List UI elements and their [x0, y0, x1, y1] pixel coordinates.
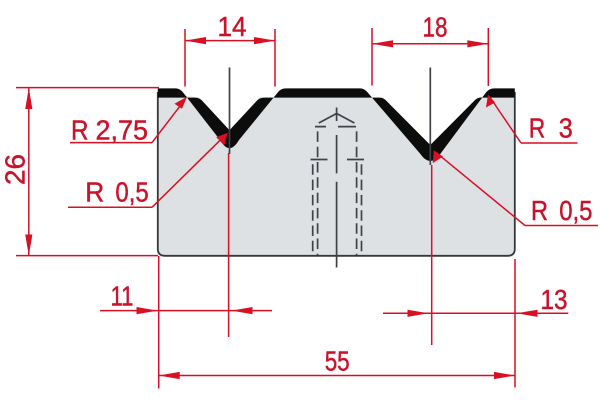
svg-text:0,5: 0,5	[559, 195, 592, 226]
svg-text:2,75: 2,75	[96, 115, 149, 146]
svg-text:14: 14	[218, 11, 247, 42]
svg-text:13: 13	[541, 284, 568, 315]
svg-text:26: 26	[0, 154, 31, 185]
svg-text:0,5: 0,5	[115, 177, 148, 208]
svg-text:R: R	[529, 113, 546, 144]
svg-text:18: 18	[423, 12, 448, 43]
svg-text:R: R	[71, 115, 89, 146]
svg-text:11: 11	[111, 281, 134, 312]
svg-text:3: 3	[559, 113, 573, 144]
svg-text:R: R	[85, 177, 104, 208]
svg-text:55: 55	[325, 346, 350, 377]
svg-text:R: R	[531, 195, 548, 226]
